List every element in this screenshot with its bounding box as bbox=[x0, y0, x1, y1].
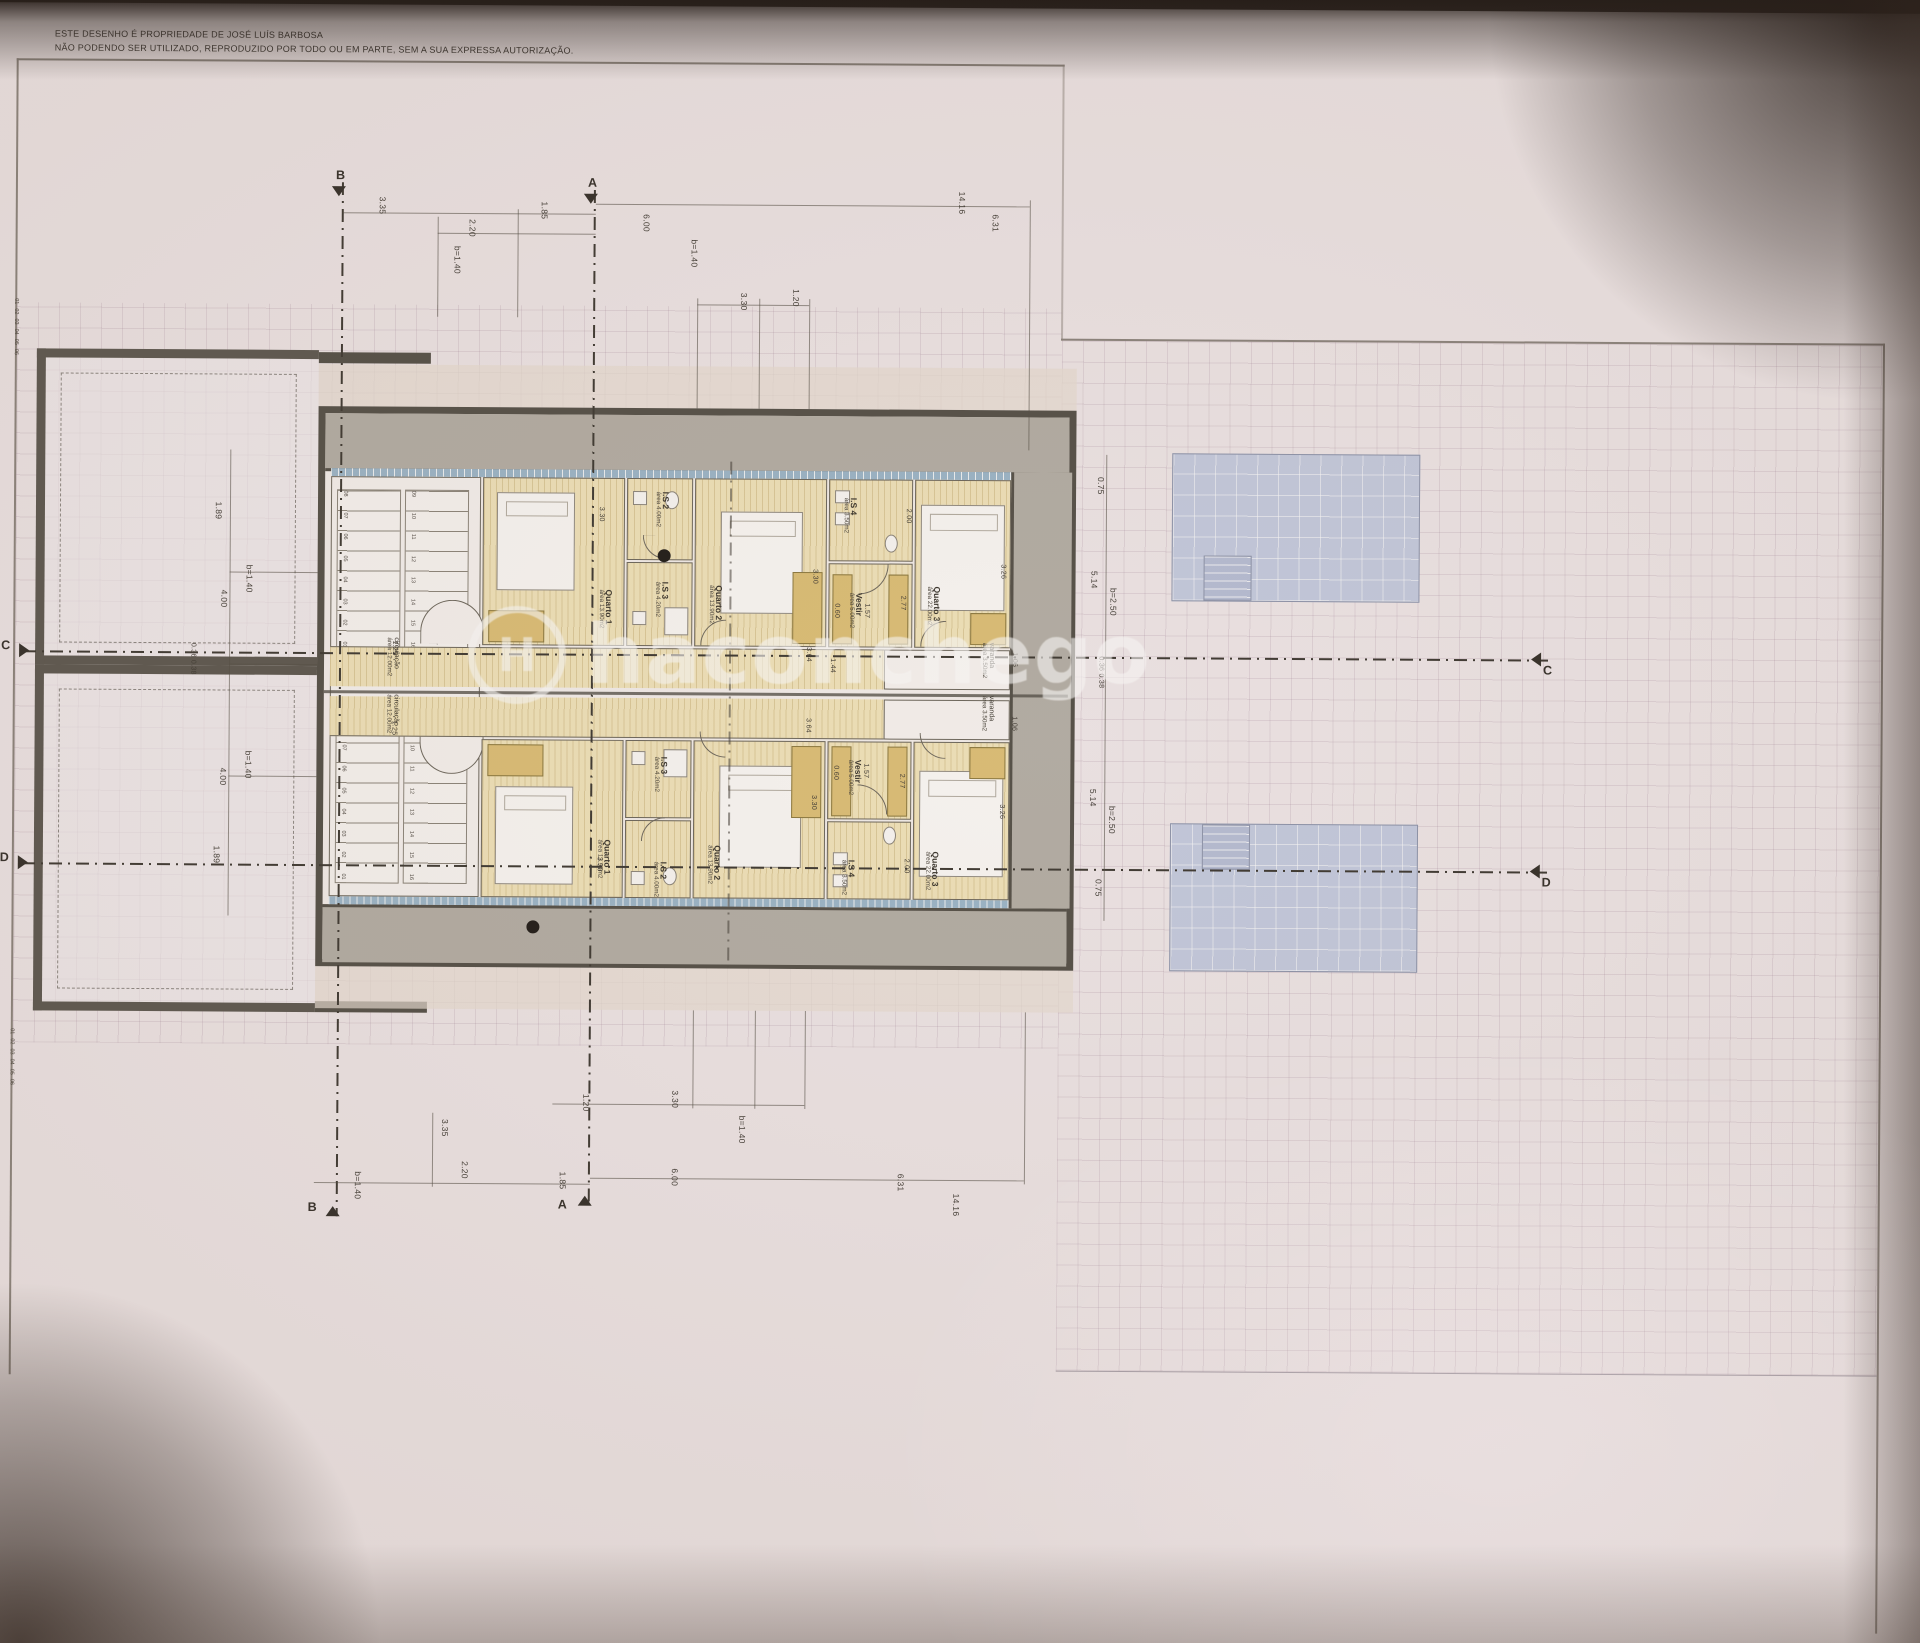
dim-right: 0.36 0.38 bbox=[1097, 656, 1104, 688]
dim-top: 3.30 bbox=[739, 293, 749, 311]
stair-step-number: 06 bbox=[340, 765, 346, 774]
edge-step-number: 03 bbox=[9, 1048, 15, 1054]
dim-q3-width: 3.26 bbox=[998, 804, 1005, 819]
column-dot bbox=[658, 549, 671, 562]
extension-line bbox=[754, 1011, 756, 1109]
stair-flight-upper-left: 0807060504030201 bbox=[336, 489, 401, 651]
frame-top bbox=[17, 58, 1065, 66]
drawing-sheet: ESTE DESENHO É PROPRIEDADE DE JOSÉ LUÍS … bbox=[0, 2, 1920, 1643]
section-flag bbox=[326, 1206, 340, 1216]
dim-bed-w: 1.44 bbox=[829, 658, 836, 673]
dim-left: 0.36 0.38 bbox=[189, 643, 196, 675]
edge-step-number: 06 bbox=[13, 349, 19, 355]
dim-is4-depth: 2.00 bbox=[903, 859, 910, 874]
dim-top: 2.20 bbox=[468, 219, 478, 237]
section-letter-C-left: C bbox=[1, 638, 10, 652]
extension-line bbox=[1024, 1012, 1026, 1184]
column-dot bbox=[526, 920, 539, 933]
wardrobe-icon bbox=[969, 747, 1005, 779]
room-label-is3-upper: I.S 3área 4.20m2 bbox=[653, 582, 669, 617]
dim-q1-width: 3.30 bbox=[596, 857, 603, 872]
roof-terrace-top bbox=[325, 413, 1069, 476]
room-label-vestir-upper: Vestirárea 5.00m2 bbox=[847, 593, 863, 628]
section-flag bbox=[1531, 652, 1541, 666]
plot-upper-setback bbox=[59, 372, 297, 643]
dim-corridor: 1.25 bbox=[390, 721, 397, 736]
room-label-quarto2-lower: Quarto 2área 13.90m2 bbox=[705, 845, 722, 884]
dim-top: b=1.40 bbox=[452, 246, 462, 274]
edge-step-numbers-lower: 010203040506 bbox=[8, 1028, 14, 1085]
dim-is4-width: 2.77 bbox=[899, 596, 906, 611]
dim-left: 1.89 bbox=[212, 846, 222, 864]
roof-terrace-bottom bbox=[322, 904, 1066, 967]
room-label-is3-lower: I.S 3área 4.20m2 bbox=[652, 757, 668, 792]
corridor-lower bbox=[330, 696, 884, 739]
dimension-line bbox=[590, 1178, 1024, 1182]
stair-step-number: 15 bbox=[408, 852, 414, 861]
stair-step-number: 12 bbox=[408, 787, 414, 796]
stair-step-number: 09 bbox=[410, 491, 416, 500]
section-letter-A-bottom: A bbox=[558, 1198, 567, 1212]
dim-bottom: 1.85 bbox=[558, 1172, 568, 1190]
edge-step-numbers-upper: 010203040506 bbox=[13, 298, 19, 355]
stair-step-number: 12 bbox=[409, 555, 415, 564]
frame-step bbox=[1061, 65, 1065, 341]
dim-vestir: 1.57 bbox=[862, 763, 869, 778]
stair-step-number: 05 bbox=[340, 787, 346, 796]
room-label-is4-upper: I.S 4área 3.50m2 bbox=[841, 498, 857, 533]
stair-step-number: 03 bbox=[340, 830, 346, 839]
toilet-icon bbox=[883, 827, 896, 845]
room-label-quarto3-lower: Quarto 3área 22.00m2 bbox=[923, 851, 940, 890]
dim-q3-width: 3.26 bbox=[999, 564, 1006, 579]
stair-step-number: 16 bbox=[407, 873, 413, 882]
dim-bottom: 1.20 bbox=[581, 1094, 591, 1112]
room-label-quarto2-upper: Quarto 2área 13.90m2 bbox=[707, 585, 724, 624]
dim-top: 14.16 bbox=[957, 192, 967, 215]
photo-of-floor-plan: ESTE DESENHO É PROPRIEDADE DE JOSÉ LUÍS … bbox=[0, 0, 1920, 1643]
section-flag bbox=[19, 643, 29, 657]
edge-step-number: 02 bbox=[13, 308, 19, 314]
dim-is4-depth: 2.00 bbox=[905, 509, 912, 524]
stair-step-number: 02 bbox=[340, 851, 346, 860]
dim-bottom: 3.35 bbox=[440, 1119, 450, 1137]
room-label-quarto3-upper: Quarto 3área 22.00m2 bbox=[925, 586, 942, 625]
toilet-icon bbox=[885, 535, 898, 553]
dim-right: 0.75 bbox=[1096, 477, 1106, 495]
dim-right: b=2.50 bbox=[1107, 806, 1117, 834]
edge-step-number: 04 bbox=[9, 1059, 15, 1065]
stair-step-number: 15 bbox=[409, 620, 415, 629]
pool-steps-icon bbox=[1203, 555, 1251, 600]
dim-vestir: 1.57 bbox=[863, 603, 870, 618]
pool-steps-icon bbox=[1202, 824, 1250, 869]
stair-step-number: 10 bbox=[408, 744, 414, 753]
dim-left: b=1.40 bbox=[243, 751, 253, 779]
section-flag bbox=[1530, 864, 1540, 878]
section-letter-D-right: D bbox=[1542, 876, 1551, 890]
dim-top: 6.00 bbox=[642, 214, 652, 232]
stair-step-number: 04 bbox=[340, 808, 346, 817]
dim-top: 6.31 bbox=[991, 214, 1001, 232]
extension-line bbox=[437, 217, 439, 317]
dim-bottom: 14.16 bbox=[951, 1194, 961, 1217]
dim-top: 1.85 bbox=[540, 202, 550, 220]
copyright-line-2: NÃO PODENDO SER UTILIZADO, REPRODUZIDO P… bbox=[55, 40, 574, 57]
room-label-vestir-lower: Vestirárea 5.00m2 bbox=[846, 760, 862, 795]
dim-wardrobe: 0.60 bbox=[832, 765, 839, 780]
dim-bottom: 6.31 bbox=[896, 1174, 906, 1192]
stair-step-number: 02 bbox=[341, 619, 347, 628]
sink-icon bbox=[631, 751, 645, 765]
dim-varanda: 1.06 bbox=[1011, 716, 1018, 731]
stair-step-number: 13 bbox=[409, 577, 415, 586]
stair-step-number: 07 bbox=[342, 512, 348, 521]
edge-step-number: 04 bbox=[13, 329, 19, 335]
copyright-note: ESTE DESENHO É PROPRIEDADE DE JOSÉ LUÍS … bbox=[55, 26, 574, 57]
dim-right: 5.14 bbox=[1089, 571, 1099, 589]
roof-terrace-right bbox=[1009, 472, 1073, 908]
section-letter-A-top: A bbox=[588, 176, 597, 190]
dim-right: 0.75 bbox=[1093, 879, 1103, 897]
section-flag bbox=[18, 855, 28, 869]
dim-left: 4.00 bbox=[218, 768, 228, 786]
stair-step-number: 11 bbox=[408, 766, 414, 775]
bed-icon bbox=[719, 766, 802, 868]
extension-line bbox=[804, 1011, 806, 1109]
dim-top: 1.20 bbox=[791, 289, 801, 307]
wardrobe-icon bbox=[970, 613, 1006, 645]
dim-bottom: b=1.40 bbox=[353, 1171, 363, 1199]
dim-wardrobe: 0.60 bbox=[833, 603, 840, 618]
building-footprint: 0807060504030201 0910111213141516 080706… bbox=[315, 406, 1076, 971]
dim-bottom: 2.20 bbox=[460, 1161, 470, 1179]
stair-flight-lower-left: 0807060504030201 bbox=[335, 721, 400, 883]
extension-line bbox=[517, 209, 519, 317]
wardrobe-icon bbox=[487, 744, 543, 776]
dim-bed: 3.64 bbox=[805, 718, 812, 733]
room-label-varanda-lower: varandaárea 3.50m2 bbox=[980, 696, 995, 731]
dimension-line bbox=[438, 233, 596, 235]
dim-right: 5.14 bbox=[1088, 789, 1098, 807]
dim-varanda: 1.06 bbox=[1011, 652, 1018, 667]
section-letter-B-top: B bbox=[336, 168, 345, 182]
dim-top: 3.35 bbox=[378, 197, 388, 215]
dim-left: 1.89 bbox=[214, 502, 224, 520]
dim-right: b=2.50 bbox=[1108, 588, 1118, 616]
room-label-is4-lower: I.S 4área 3.50m2 bbox=[839, 860, 855, 895]
room-label-is2-upper: I.S 2área 4.00m2 bbox=[653, 492, 669, 527]
edge-step-number: 01 bbox=[9, 1028, 15, 1034]
ground-strip-bottom bbox=[315, 966, 1073, 1013]
edge-step-number: 01 bbox=[13, 298, 19, 304]
stair-step-number: 05 bbox=[341, 555, 347, 564]
stair-step-number: 13 bbox=[408, 809, 414, 818]
room-label-varanda-upper: varandaárea 3.50m2 bbox=[980, 643, 995, 678]
stair-step-number: 14 bbox=[409, 598, 415, 607]
section-flag bbox=[584, 194, 598, 204]
edge-step-number: 05 bbox=[9, 1069, 15, 1075]
dim-bottom: 6.00 bbox=[670, 1168, 680, 1186]
room-label-quarto1-upper: Quarto 1área 13.90m2 bbox=[597, 589, 614, 628]
bed-icon bbox=[496, 492, 575, 590]
sink-icon bbox=[631, 871, 645, 885]
dim-left: 4.00 bbox=[219, 590, 229, 608]
stair-step-number: 07 bbox=[340, 744, 346, 753]
edge-step-number: 03 bbox=[13, 318, 19, 324]
wardrobe-icon bbox=[488, 610, 544, 642]
section-letter-D-left: D bbox=[0, 850, 9, 864]
sink-icon bbox=[633, 491, 647, 505]
stair-step-number: 01 bbox=[339, 873, 345, 882]
dim-q1-width: 3.30 bbox=[598, 507, 605, 522]
dim-q2-width: 3.30 bbox=[810, 795, 817, 810]
extension-line bbox=[432, 1113, 433, 1187]
plot-lower-setback bbox=[57, 688, 295, 989]
bed-icon bbox=[495, 786, 574, 884]
stair-step-number: 04 bbox=[341, 576, 347, 585]
plot-top-bar bbox=[319, 352, 431, 364]
stair-step-number: 14 bbox=[408, 830, 414, 839]
bed-icon bbox=[720, 512, 803, 614]
dim-left: b=1.40 bbox=[244, 565, 254, 593]
dim-top: b=1.40 bbox=[689, 239, 699, 267]
stair-step-number: 11 bbox=[410, 534, 416, 543]
edge-step-number: 02 bbox=[9, 1038, 15, 1044]
stair-step-number: 10 bbox=[410, 512, 416, 521]
section-flag bbox=[332, 186, 346, 196]
section-flag bbox=[578, 1196, 592, 1206]
dim-q2-width: 3.30 bbox=[811, 569, 818, 584]
sink-icon bbox=[632, 611, 646, 625]
dim-is4-width: 2.77 bbox=[898, 774, 905, 789]
stair-step-number: 06 bbox=[342, 533, 348, 542]
section-letter-B-bottom: B bbox=[308, 1200, 317, 1214]
edge-step-number: 05 bbox=[13, 339, 19, 345]
dim-bottom: 3.30 bbox=[670, 1090, 680, 1108]
stair-step-number: 08 bbox=[342, 490, 348, 499]
stair-step-number: 03 bbox=[341, 598, 347, 607]
dim-bottom: b=1.40 bbox=[737, 1116, 747, 1144]
extension-line bbox=[692, 1010, 694, 1108]
edge-step-number: 06 bbox=[8, 1079, 14, 1085]
section-letter-C-right: C bbox=[1543, 664, 1552, 678]
